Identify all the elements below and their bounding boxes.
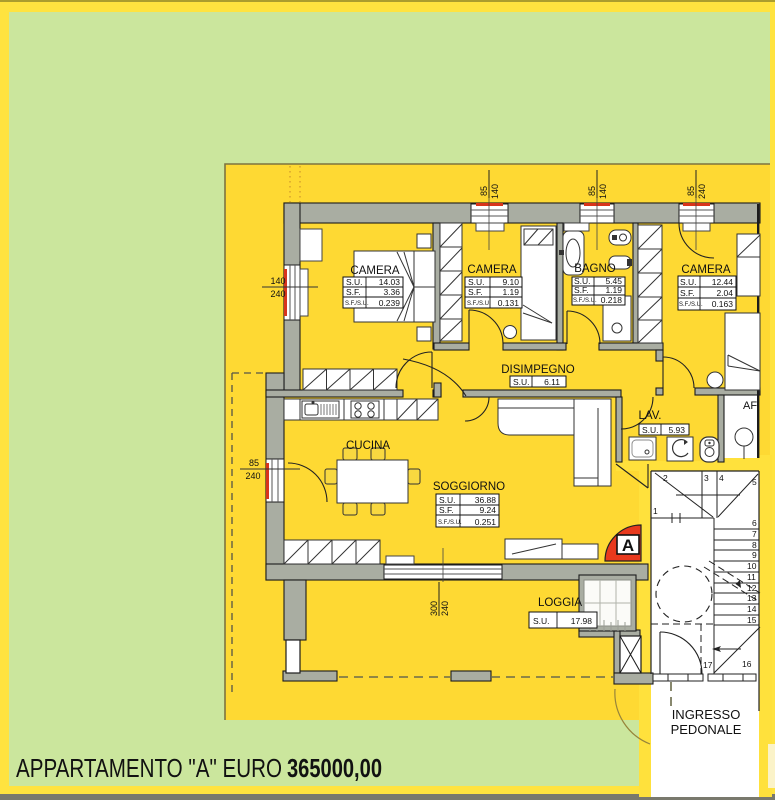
svg-text:8: 8: [752, 540, 757, 550]
svg-text:11: 11: [747, 572, 756, 582]
svg-text:10: 10: [747, 561, 757, 571]
svg-text:6.11: 6.11: [544, 377, 560, 387]
svg-text:S.F.: S.F.: [574, 285, 589, 295]
svg-text:0.131: 0.131: [498, 298, 520, 308]
svg-text:85: 85: [587, 186, 597, 196]
svg-text:1.19: 1.19: [605, 285, 622, 295]
svg-text:S.F./S.U.: S.F./S.U.: [679, 302, 703, 308]
svg-text:14: 14: [747, 604, 757, 614]
svg-text:AF: AF: [743, 400, 757, 412]
svg-text:240: 240: [440, 601, 450, 616]
svg-text:S.U.: S.U.: [533, 616, 550, 626]
svg-text:CAMERA: CAMERA: [350, 265, 400, 277]
svg-text:3: 3: [704, 473, 709, 483]
svg-text:INGRESSO: INGRESSO: [672, 707, 741, 722]
svg-text:36.88: 36.88: [475, 495, 497, 505]
svg-text:16: 16: [742, 659, 752, 669]
svg-text:12: 12: [747, 583, 757, 593]
svg-text:0.251: 0.251: [475, 517, 497, 527]
svg-text:APPARTAMENTO "A" EURO: APPARTAMENTO "A" EURO: [16, 753, 282, 783]
svg-text:S.F.: S.F.: [439, 505, 454, 515]
svg-text:17: 17: [703, 660, 713, 670]
svg-text:15: 15: [747, 615, 757, 625]
svg-text:S.U.: S.U.: [642, 425, 659, 435]
svg-text:1.19: 1.19: [502, 287, 519, 297]
svg-text:13: 13: [747, 593, 757, 603]
svg-text:240: 240: [697, 184, 707, 199]
svg-text:5: 5: [752, 477, 757, 487]
svg-text:140: 140: [490, 184, 500, 199]
svg-text:CAMERA: CAMERA: [467, 264, 517, 276]
svg-text:140: 140: [598, 184, 608, 199]
svg-text:9: 9: [752, 550, 757, 560]
svg-text:240: 240: [245, 471, 260, 481]
svg-text:0.218: 0.218: [601, 295, 623, 305]
svg-text:S.U.: S.U.: [680, 277, 697, 287]
svg-text:DISIMPEGNO: DISIMPEGNO: [501, 364, 575, 376]
svg-text:S.F.: S.F.: [346, 287, 361, 297]
svg-text:S.F.: S.F.: [680, 288, 695, 298]
svg-text:PEDONALE: PEDONALE: [671, 722, 742, 737]
svg-text:1: 1: [653, 506, 658, 516]
svg-text:240: 240: [270, 289, 285, 299]
svg-text:SOGGIORNO: SOGGIORNO: [433, 481, 505, 493]
svg-text:85: 85: [686, 186, 696, 196]
svg-text:S.F./S.U.: S.F./S.U.: [573, 298, 597, 304]
svg-text:A: A: [622, 536, 634, 555]
svg-text:9.24: 9.24: [479, 505, 496, 515]
svg-text:BAGNO: BAGNO: [574, 263, 616, 275]
svg-text:6: 6: [752, 518, 757, 528]
svg-text:4: 4: [719, 473, 724, 483]
svg-text:S.U.: S.U.: [439, 495, 456, 505]
svg-text:CAMERA: CAMERA: [681, 264, 731, 276]
svg-text:S.F./S.U.: S.F./S.U.: [345, 301, 369, 307]
svg-text:9.10: 9.10: [502, 277, 519, 287]
svg-text:14.03: 14.03: [379, 277, 401, 287]
svg-text:2.04: 2.04: [716, 288, 733, 298]
svg-text:85: 85: [479, 186, 489, 196]
svg-text:S.F./S.U.: S.F./S.U.: [467, 301, 491, 307]
svg-text:0.163: 0.163: [712, 299, 734, 309]
svg-text:S.U.: S.U.: [468, 277, 485, 287]
svg-text:365000,00: 365000,00: [287, 753, 382, 783]
svg-text:LAV.: LAV.: [638, 410, 661, 422]
svg-text:17.98: 17.98: [571, 616, 593, 626]
svg-text:S.F.: S.F.: [468, 287, 483, 297]
svg-text:2: 2: [663, 473, 668, 483]
svg-text:3.36: 3.36: [383, 287, 400, 297]
svg-text:300: 300: [429, 601, 439, 616]
svg-text:5.93: 5.93: [668, 425, 685, 435]
svg-text:7: 7: [752, 529, 757, 539]
svg-text:CUCINA: CUCINA: [346, 440, 390, 452]
svg-text:12.44: 12.44: [712, 277, 734, 287]
svg-text:S.U.: S.U.: [346, 277, 363, 287]
svg-text:S.U.: S.U.: [513, 377, 530, 387]
svg-text:0.239: 0.239: [379, 298, 401, 308]
svg-text:140: 140: [270, 276, 285, 286]
svg-text:LOGGIA: LOGGIA: [538, 597, 582, 609]
svg-text:85: 85: [249, 458, 259, 468]
svg-text:S.F./S.U.: S.F./S.U.: [438, 520, 462, 526]
